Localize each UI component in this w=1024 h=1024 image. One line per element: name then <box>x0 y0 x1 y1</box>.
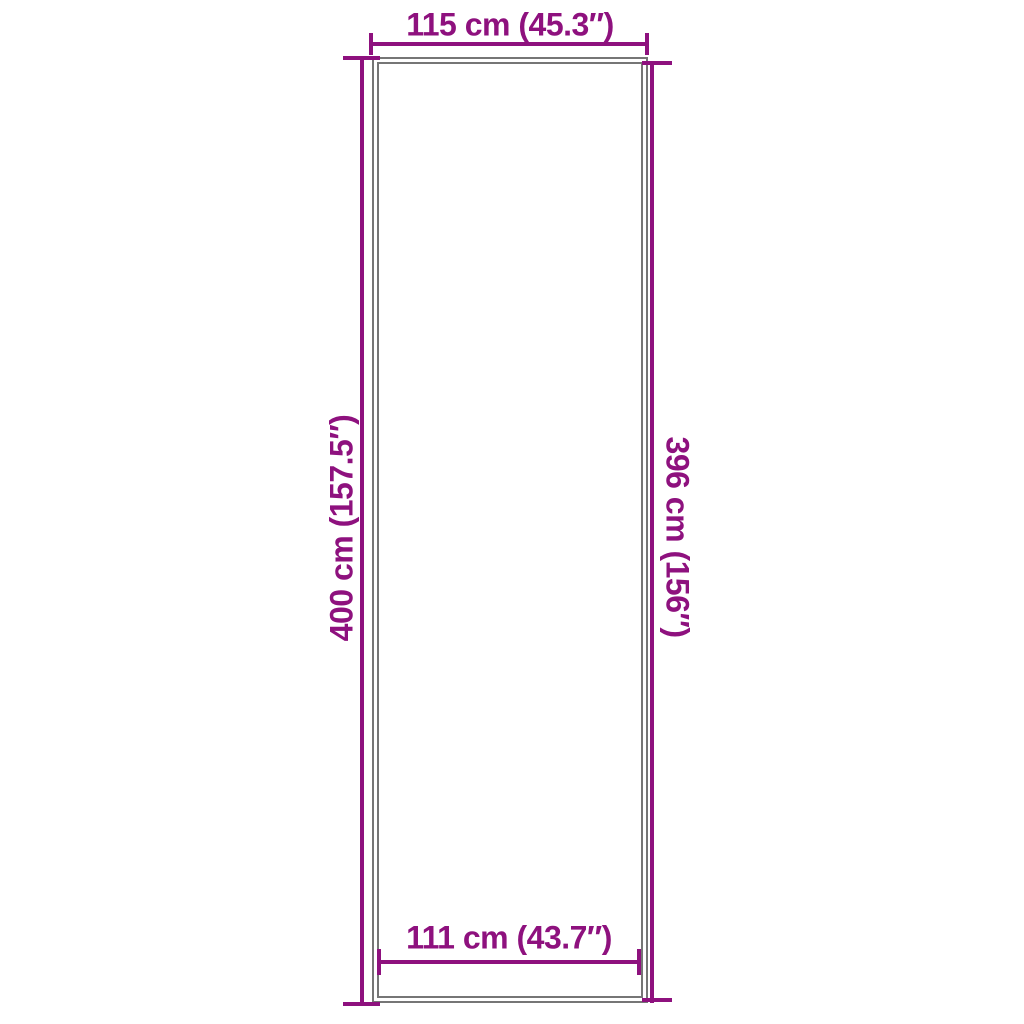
right-dimension-top-tick <box>642 61 672 65</box>
dimension-diagram: 115 cm (45.3″) 400 cm (157.5″) 396 cm (1… <box>0 0 1024 1024</box>
top-dimension-left-tick <box>369 33 373 55</box>
right-dimension-label: 396 cm (156″) <box>659 437 696 638</box>
left-dimension-bottom-tick <box>343 1002 380 1006</box>
right-dimension-line <box>650 62 654 1003</box>
bottom-dimension-label: 111 cm (43.7″) <box>406 920 612 957</box>
left-dimension-top-tick <box>343 56 380 60</box>
mat-outline <box>372 57 648 1003</box>
mat-inner-outline <box>377 62 643 998</box>
bottom-dimension-right-tick <box>637 949 641 975</box>
left-dimension-line <box>360 57 364 1006</box>
left-dimension-label: 400 cm (157.5″) <box>324 415 361 642</box>
top-dimension-right-tick <box>645 33 649 55</box>
bottom-dimension-left-tick <box>377 949 381 975</box>
bottom-dimension-line <box>378 960 640 964</box>
top-dimension-label: 115 cm (45.3″) <box>406 7 614 44</box>
right-dimension-bottom-tick <box>642 998 672 1002</box>
